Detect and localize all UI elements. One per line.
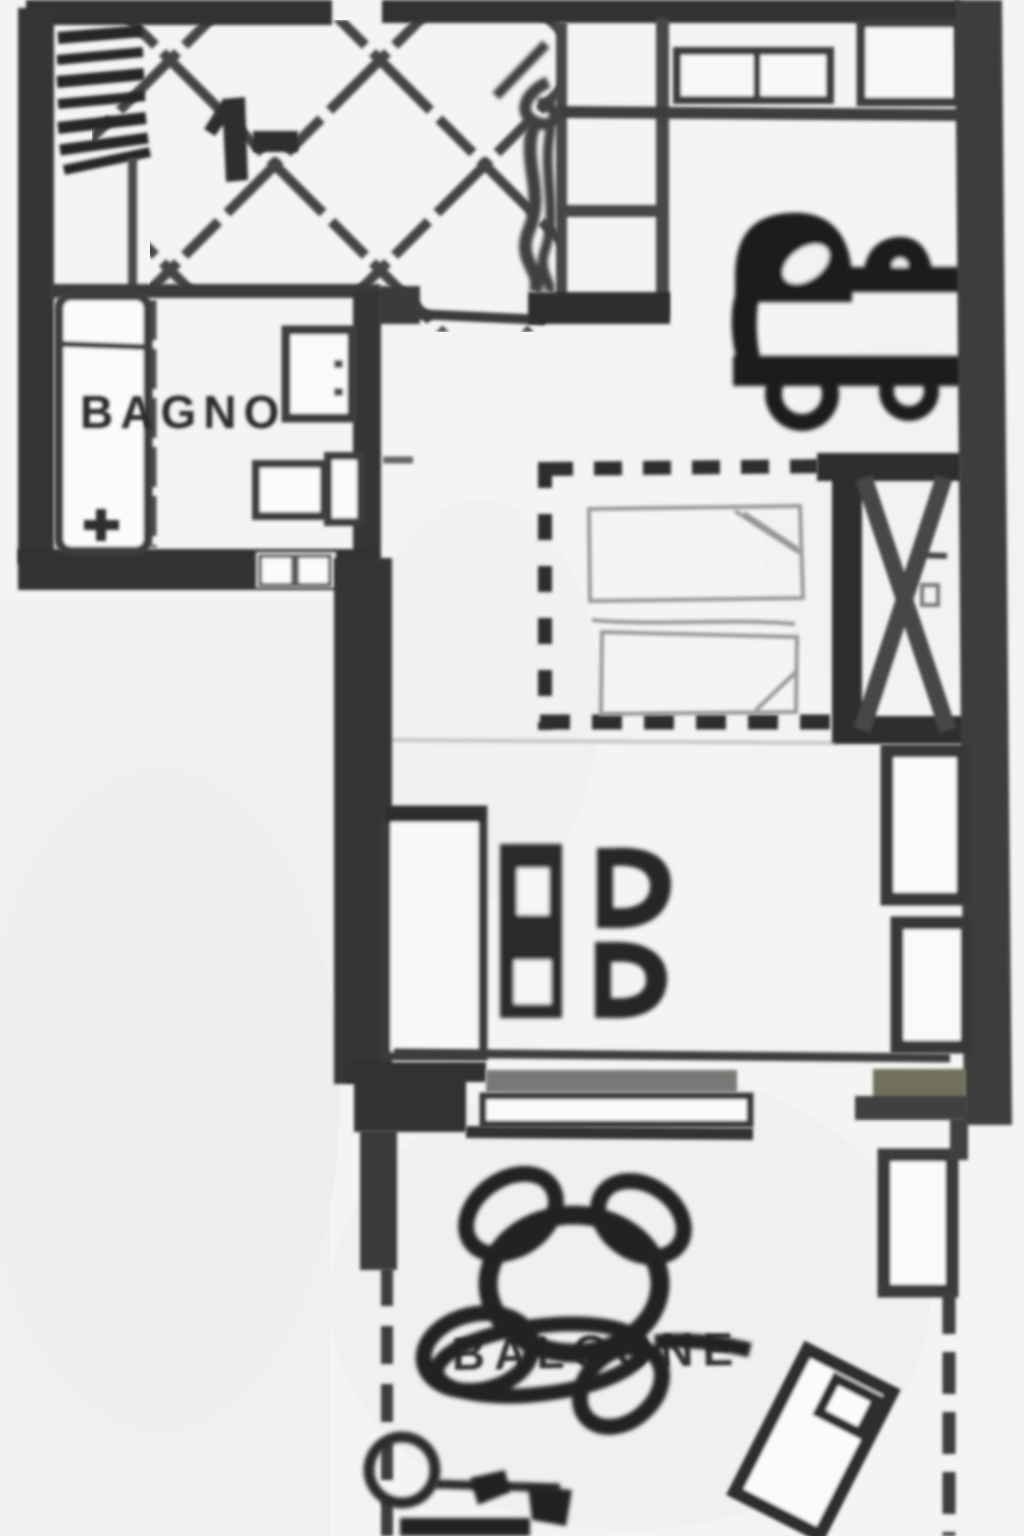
svg-text:BAGNO: BAGNO (80, 386, 286, 438)
